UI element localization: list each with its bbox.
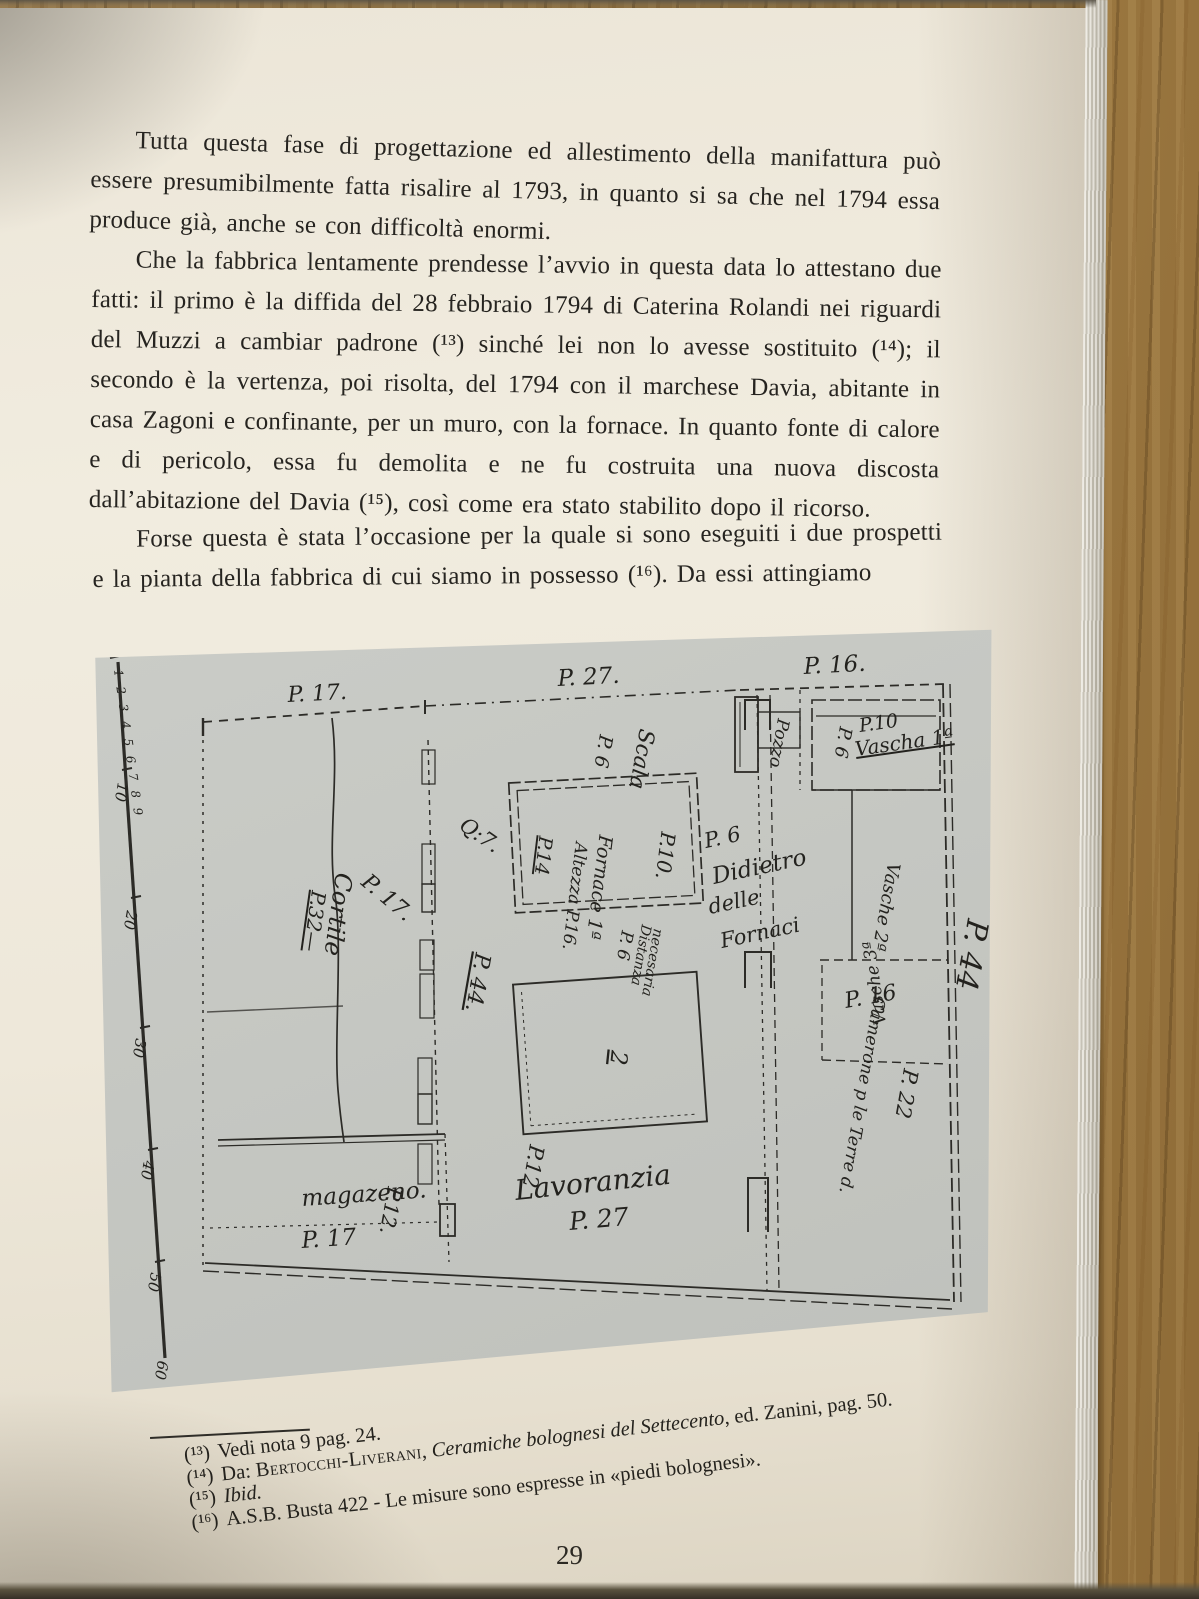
page-number: 29: [556, 1540, 583, 1571]
fornace-room: P.10. Fornace 1ª Altezza P.16. P.14: [509, 773, 706, 954]
plan-label-top-p27: P. 27.: [556, 663, 620, 692]
footnote-marker: (¹⁴): [185, 1463, 222, 1489]
plan-label-vasche2: Vasche 2ª: [868, 861, 904, 953]
room-2: 2: [513, 972, 707, 1134]
plan-label-vascha1-p6: P. 6: [830, 724, 856, 760]
plan-label-room2: 2: [604, 1048, 631, 1066]
scale-tick-40: 40: [137, 1158, 158, 1181]
plan-label-fornaci: Fornaci: [717, 913, 802, 953]
footnote-marker: (¹³): [183, 1441, 219, 1467]
main-text: Tutta questa fase di progettazione ed al…: [92, 120, 942, 600]
plan-label-fornace-p10: P.10.: [651, 829, 681, 880]
top-page-edge-shadow: [0, 0, 1096, 8]
plan-label-q7: Q:7.: [455, 812, 505, 857]
corridor-walls: [745, 695, 779, 1290]
scale-tick-30: 30: [129, 1037, 150, 1059]
plan-label-cortile-p17: P. 17.: [355, 869, 417, 927]
plan-label-top-p16: P. 16.: [802, 651, 866, 680]
plan-label-scala-p6: P. 6: [589, 732, 617, 769]
scale-bar: 1 2 3 4 5 6 7 8 9 10 20 30 40 50 60: [110, 654, 172, 1382]
plan-label-wall-p44: P. 44.: [460, 950, 495, 1014]
scale-tick-20: 20: [120, 908, 141, 931]
plan-label-camerone-p22: P. 22: [890, 1066, 922, 1120]
plan-label-pozzo: Pozzo: [765, 716, 793, 769]
plan-label-scala: Scala: [624, 727, 659, 791]
plan-label-bottom-p27: P. 27: [567, 1202, 630, 1236]
plan-label-top-p17: P. 17.: [286, 680, 348, 708]
floor-plan-figure: 1 2 3 4 5 6 7 8 9 10 20 30 40 50 60: [88, 622, 996, 1400]
footnote-text: Da:: [220, 1459, 257, 1485]
scale-tick-60: 60: [151, 1359, 172, 1381]
plan-label-right-p44: P. 44: [948, 916, 995, 993]
plan-label-didietro: Didietro: [709, 845, 809, 891]
bottom-page-edge-shadow: [0, 1582, 1199, 1599]
paragraph: Che la fabbrica lentamente prendesse l’a…: [89, 240, 942, 530]
book-photo-scene: Tutta questa fase di progettazione ed al…: [0, 0, 1199, 1599]
plan-label-camerone: Camerone p le Terre d.: [834, 995, 888, 1195]
scale-tick-50: 50: [144, 1271, 165, 1293]
scale-tick-10: 10: [111, 781, 132, 803]
plan-label-p14: P.14: [530, 834, 557, 877]
plan-label-magazeno: magazeno.: [301, 1177, 428, 1212]
paragraph: Forse questa è stata l’occasione per la …: [92, 513, 943, 600]
plan-label-magazeno-p17: P. 17: [300, 1224, 358, 1254]
footnote-marker: (¹⁵): [188, 1485, 225, 1511]
floor-plan-drawing: 1 2 3 4 5 6 7 8 9 10 20 30 40 50 60: [88, 622, 996, 1400]
plan-label-didietro-p6: P. 6: [701, 822, 743, 853]
footnote-marker: (¹⁶): [190, 1508, 227, 1534]
